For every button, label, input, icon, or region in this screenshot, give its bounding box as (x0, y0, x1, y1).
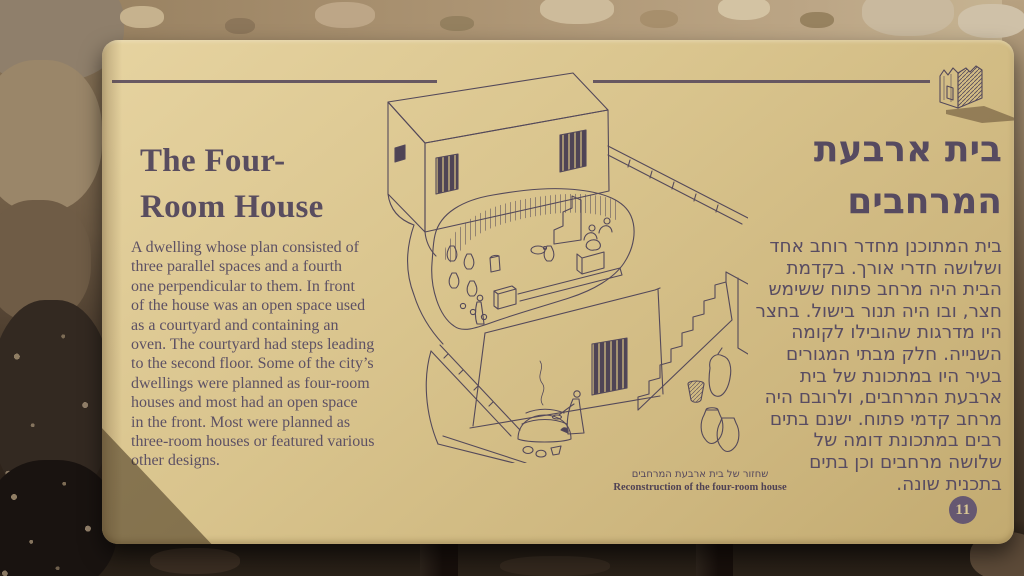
text-line: as a courtyard and containing an (131, 316, 393, 335)
info-sign-panel: The Four- Room House A dwelling whose pl… (102, 40, 1014, 544)
photo-of-sign: The Four- Room House A dwelling whose pl… (0, 0, 1024, 576)
text-line: three-room houses or featured various (131, 432, 393, 451)
text-line: A dwelling whose plan consisted of (131, 238, 393, 257)
text-line: ארבעת המרחבים, ולרובם היה (732, 387, 1002, 409)
rock (120, 6, 164, 28)
text-line: of the house was an open space used (131, 296, 393, 315)
title-english: The Four- Room House (140, 138, 324, 230)
text-line: dwellings were planned as four-room (131, 374, 393, 393)
text-line: השנייה. חלק מבתי המגורים (732, 344, 1002, 366)
text-line: oven. The courtyard had steps leading (131, 335, 393, 354)
dark-rock (0, 460, 117, 576)
rock (315, 2, 375, 28)
text-line: in the front. Most were planned as (131, 413, 393, 432)
sign-post-right (696, 540, 733, 576)
text-line: one perpendicular to them. In front (131, 277, 393, 296)
rock (440, 16, 474, 31)
rock (800, 12, 834, 28)
house-model-icon (922, 54, 1014, 124)
rock (718, 0, 770, 20)
text-line: היו מדרגות שהובילו לקומה (732, 322, 1002, 344)
text-line: בית המתוכנן מחדר רוחב אחד (732, 236, 1002, 258)
rock (540, 0, 614, 24)
rock (500, 556, 610, 576)
text-line: שלושה מרחבים וכן בתים (732, 452, 1002, 474)
title-line: Room House (140, 184, 324, 230)
text-line: הבית היה מרחב פתוח ששימש (732, 279, 1002, 301)
text-line: to the second floor. Some of the city’s (131, 354, 393, 373)
text-line: מרחב קדמי פתוח. ישנם בתים (732, 409, 1002, 431)
sign-number-badge: 11 (949, 496, 977, 524)
four-room-house-illustration (368, 58, 748, 463)
rock (150, 548, 240, 574)
title-line: המרחבים (814, 176, 1002, 228)
text-line: ושלושה חדרי אורך. בקדמת (732, 258, 1002, 280)
text-line: חצר, ובו היה תנור בישול. בחצר (732, 301, 1002, 323)
text-line: בתכנית שונה. (732, 474, 1002, 496)
paragraph-hebrew: בית המתוכנן מחדר רוחב אחד ושלושה חדרי או… (732, 236, 1002, 495)
text-line: רבים במתכונת דומה של (732, 430, 1002, 452)
rock (225, 18, 255, 34)
rock (958, 4, 1024, 38)
text-line: houses and most had an open space (131, 393, 393, 412)
title-line: בית ארבעת (814, 124, 1002, 176)
title-hebrew: בית ארבעת המרחבים (814, 124, 1002, 228)
paragraph-english: A dwelling whose plan consisted of three… (131, 238, 393, 471)
title-line: The Four- (140, 138, 324, 184)
rock (0, 60, 102, 212)
text-line: בעיר היו במתכונת של בית (732, 366, 1002, 388)
rock (640, 10, 678, 28)
text-line: three parallel spaces and a fourth (131, 257, 393, 276)
text-line: other designs. (131, 451, 393, 470)
